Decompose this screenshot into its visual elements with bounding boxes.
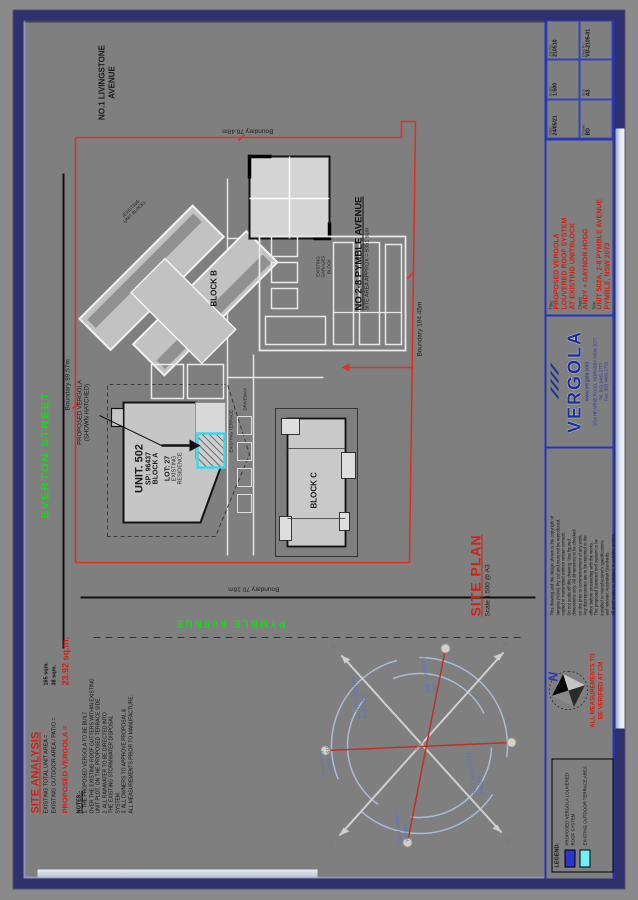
boundary-label-right: Boundary 76.48m [222, 128, 273, 135]
title-block-compass-section: N ALL MEASUREMENTS TOBE VERIFIED AT CM [547, 621, 613, 761]
garage-court [260, 237, 406, 351]
drawing-caption-title: SITE PLAN [468, 534, 484, 616]
legend-heading: LEGEND: [555, 764, 561, 868]
terrace-label: EXISTING TERRACE [229, 410, 234, 453]
site-analysis-block: SITE ANALYSIS EXISTING TOTAL UNIT AREA =… [30, 592, 135, 814]
sun-wind-diagram: morning winter sun warm summer breezes c… [312, 621, 527, 871]
scan-edge-artifact [616, 129, 625, 729]
vergola-logo-text: VERGOLA [566, 317, 584, 447]
legend-swatch-blue [565, 850, 576, 868]
sa-row1-value: 165 sqm. [44, 662, 50, 686]
north-arrow: N [548, 664, 590, 718]
page: { "colors":{"red":"#d42015","green":"#17… [0, 0, 638, 900]
title-block-logo-section: VERGOLA www.vergola.com 2/14 HEARNE ROAD… [547, 317, 613, 449]
block-b-label: BLOCK B [210, 270, 219, 306]
info-cell-scale: Scale: 1:500 [547, 60, 580, 99]
info-cell-drawn: Drawn: BD [580, 99, 613, 138]
site-address: UNIT 502A, 2-8 PYMBLE AVENUEPYMBLE, NSW … [597, 146, 613, 310]
legend-label: PROPOSED VERGOLA LOUVERED ROOF SYSTEM [565, 764, 576, 846]
legend-swatch-cyan [580, 850, 591, 868]
lot-label: LOT: 27 [165, 419, 172, 519]
drawing-caption-scale: Scale 1:500 @ A3 [485, 534, 492, 616]
title-block-legend-section: LEGEND: PROPOSED VERGOLA LOUVERED ROOF S… [547, 761, 613, 879]
garden-structures [238, 417, 252, 513]
site-analysis-row: EXISTING OUTDOOR AREA / PATIO = 38 sqm. [52, 592, 58, 814]
client-name: ANDY + GAYNOR HOGG [583, 146, 591, 310]
direction-label-ne: NE [332, 642, 338, 649]
strata-plan: SP: 96437 [146, 419, 153, 519]
info-value: BD [586, 102, 592, 135]
scan-edge-artifact [38, 870, 318, 878]
site-analysis-row: EXISTING TOTAL UNIT AREA = 165 sqm. [44, 592, 50, 814]
info-value: 24/05/21 [553, 102, 559, 135]
sa-row2-label: EXISTING OUTDOOR AREA / PATIO = [52, 686, 58, 814]
boundary-label-left: Boundary 70.16m [228, 586, 279, 593]
vergola-website: www.vergola.com [585, 317, 591, 447]
info-cell-size: Size: A3 [580, 60, 613, 99]
drawing-caption: SITE PLAN Scale 1:500 @ A3 [468, 534, 492, 616]
street-label-pymble: PYMBLE AVENUE [174, 618, 285, 629]
neighbor-site-sub: SITE AREA APPROX = 9351 sqm [365, 196, 371, 310]
driveway-label: DRIVEWAY [243, 388, 248, 411]
neighbor-site-label: NO 2-8 PYMBLE AVENUE SITE AREA APPROX = … [354, 196, 371, 310]
title-block: LEGEND: PROPOSED VERGOLA LOUVERED ROOF S… [545, 21, 615, 879]
info-cell-job: Job No: 210510 [547, 21, 580, 60]
info-cell-date: Date: 24/05/21 [547, 99, 580, 138]
boundary-label-bottom: Boundary 104.45m [417, 302, 424, 357]
direction-label-sw: SW [506, 838, 512, 846]
vergola-louvre-icon [549, 360, 561, 404]
block-a-label: BLOCK A [153, 419, 160, 519]
vergola-address: 2/14 HEARNE ROAD, HORNSBY NSW 2077 Tel: … [593, 317, 610, 447]
neighbor-label-livingstone: NO.1 LIVINGSTONEAVENUE [98, 33, 117, 133]
boundary-label-top: Boundary 99.57m [65, 359, 72, 410]
sa-row3-value: 23.92 sq.m. [61, 637, 71, 686]
info-cell-dwgno: Dwg No: VD-2105-01 [580, 21, 613, 60]
info-value: VD-2105-01 [586, 24, 592, 57]
info-value: 1:500 [553, 63, 559, 96]
garages-label: EXISTINGGARAGESBLOCK [316, 247, 332, 287]
title-block-disclaimer: This drawing and the design shown is the… [547, 449, 613, 621]
block-c-label: BLOCK C [310, 472, 319, 508]
project-title: PROPOSED VERGOLALOUVERED ROOF SYSTEMAT E… [554, 146, 577, 310]
legend-box: LEGEND: PROPOSED VERGOLA LOUVERED ROOF S… [552, 759, 614, 873]
sa-row1-label: EXISTING TOTAL UNIT AREA = [44, 686, 50, 814]
legend-item: EXISTING OUTDOOR TERRACE AREA [580, 764, 591, 868]
sa-row3-label: PROPOSED VERGOLA = [61, 686, 71, 814]
unit-number: UNIT. 502 [134, 419, 146, 519]
legend-item: PROPOSED VERGOLA LOUVERED ROOF SYSTEM [565, 764, 576, 868]
vergola-callout-label: PROPOSED VERGOLA(SHOWN HATCHED) [78, 367, 92, 459]
vergola-fax: Fax: (02) 9482 2733 [604, 317, 610, 447]
info-value: 210510 [553, 24, 559, 57]
north-letter: N [546, 672, 561, 681]
sa-row2-value: 38 sqm. [52, 665, 58, 685]
existing-residence-label: EXISTINGRESIDENCE [172, 419, 185, 519]
direction-label-se: SE [504, 640, 510, 647]
existing-building-ne [250, 157, 330, 239]
sun-wind-diagram-graphic [312, 621, 527, 871]
sheet-interior: EVERTON STREET PYMBLE AVENUE NO.1 LIVING… [24, 21, 615, 879]
title-block-info-table: Date: 24/05/21 Scale: 1:500 Job No: 2105… [547, 21, 613, 141]
neighbor-site-title: NO 2-8 PYMBLE AVENUE [354, 196, 365, 310]
unit-502-labels: UNIT. 502 SP: 96437 BLOCK A LOT: 27 EXIS… [134, 419, 185, 519]
site-analysis-heading: SITE ANALYSIS [30, 592, 42, 814]
notes-lines: 1. THE PROPOSED VERGOLA TO BE BUILT OVER… [83, 592, 135, 814]
legend-label: EXISTING OUTDOOR TERRACE AREA [582, 766, 587, 845]
proposed-vergola-area [198, 434, 225, 468]
info-value: A3 [586, 63, 592, 96]
title-block-project-section: Title: PROPOSED VERGOLALOUVERED ROOF SYS… [547, 141, 613, 317]
direction-label-nw: NW [330, 840, 336, 848]
drawing-sheet: EVERTON STREET PYMBLE AVENUE NO.1 LIVING… [14, 11, 625, 889]
street-label-everton: EVERTON STREET [40, 391, 52, 518]
verify-measurements-note: ALL MEASUREMENTS TOBE VERIFIED AT CM [591, 621, 606, 761]
site-analysis-proposed-row: PROPOSED VERGOLA = 23.92 sq.m. [61, 592, 71, 814]
